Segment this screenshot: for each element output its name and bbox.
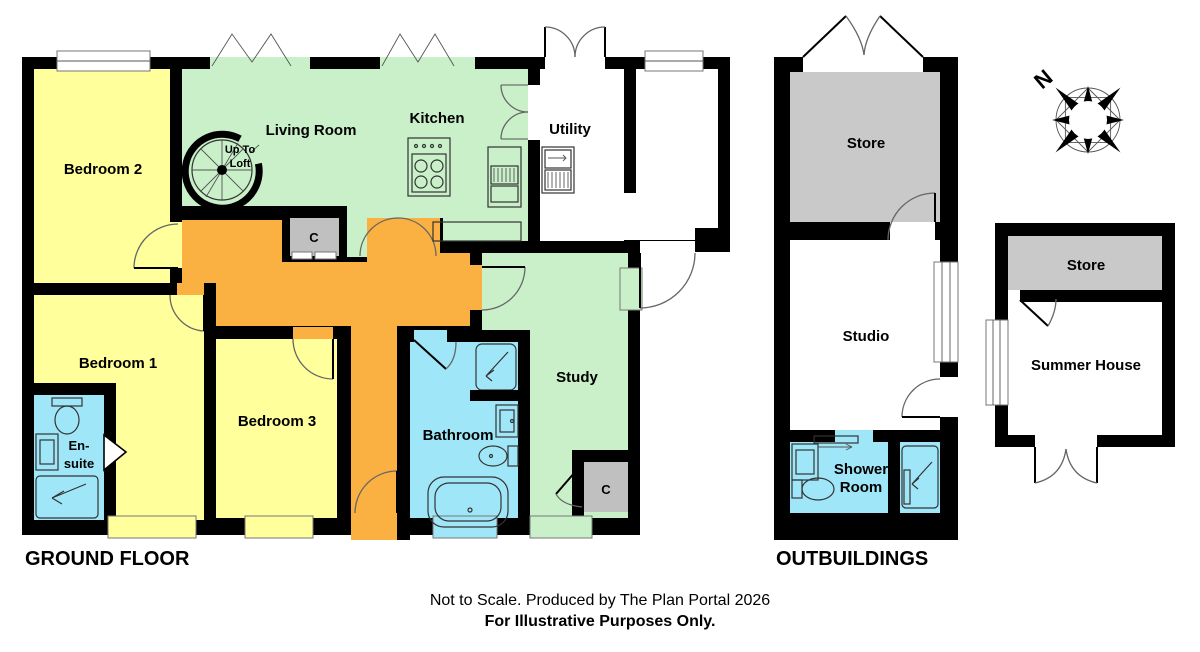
store-double-door: [803, 16, 923, 57]
window-bedroom3-bottom: [245, 516, 313, 538]
bathroom-study-wall: [518, 330, 530, 518]
summer-store-door-gap: [1008, 290, 1020, 302]
kitchen-utility-door-gap: [528, 85, 540, 140]
bathroom-label: Bathroom: [423, 427, 494, 444]
window-study-bottom: [530, 516, 592, 538]
bedroom3-top-wall-b: [333, 327, 351, 339]
utility-internal-wall: [624, 69, 636, 193]
store-door-gap: [890, 222, 935, 240]
wing-back-door: [640, 253, 695, 308]
summer-house-plan: Store Summer House: [986, 223, 1175, 483]
ground-floor-plan: C C: [22, 27, 730, 540]
bedroom1-right-wall: [204, 283, 216, 520]
bedroom3-door-gap: [293, 327, 333, 339]
room-utility-right: [636, 69, 718, 240]
closet-study-label: C: [601, 482, 611, 497]
studio-door-gap: [940, 377, 958, 417]
wing-door-gap: [640, 241, 695, 253]
studio-label: Studio: [843, 328, 890, 345]
ground-floor-title: GROUND FLOOR: [25, 548, 190, 570]
utility-opening: [624, 193, 636, 240]
bathroom-door-gap: [414, 330, 447, 342]
outbuildings-title: OUTBUILDINGS: [776, 548, 928, 570]
opening-living-top: [210, 57, 310, 70]
wing-corner: [695, 228, 730, 252]
ensuite-label-2: suite: [64, 456, 94, 471]
corridor-right-wall: [397, 326, 410, 540]
summer-entrance-gap: [1035, 435, 1097, 447]
shower-stall-area: [900, 442, 940, 513]
ensuite-label-1: En-: [69, 438, 90, 453]
summer-store-label: Store: [1067, 257, 1105, 274]
closet-hall: C: [282, 218, 347, 262]
closet-hall-label: C: [309, 230, 319, 245]
shower-room-label-1: Shower: [834, 461, 888, 478]
stairs-label-2: Loft: [230, 158, 251, 170]
window-studio-right: [934, 262, 958, 362]
window-summer-left: [986, 320, 1008, 405]
bedroom2-door-gap: [170, 222, 182, 268]
bedroom3-top-wall-a: [204, 327, 293, 339]
footer-line-1: Not to Scale. Produced by The Plan Porta…: [430, 592, 770, 609]
window-bedroom1-bottom: [108, 516, 196, 538]
compass-north-label: N: [1029, 64, 1057, 93]
kitchen-label: Kitchen: [409, 110, 464, 127]
stairs-label-1: Up To: [225, 144, 256, 156]
kitchen-bottom-wall: [440, 241, 640, 253]
study-door-gap: [470, 265, 482, 310]
summer-double-door: [1035, 447, 1097, 483]
entrance-opening: [545, 57, 605, 70]
bedroom2-label: Bedroom 2: [64, 161, 142, 178]
bed1-bed2-wall: [22, 283, 177, 295]
entrance-double-door: [545, 27, 605, 57]
opening-kitchen-top: [380, 57, 475, 70]
footer-line-2: For Illustrative Purposes Only.: [485, 613, 716, 630]
bedroom1-label: Bedroom 1: [79, 355, 157, 372]
window-study-right: [620, 268, 642, 310]
bedroom3-right-wall: [337, 339, 351, 518]
store-label: Store: [847, 135, 885, 152]
bedroom3-label: Bedroom 3: [238, 413, 316, 430]
utility-label: Utility: [549, 121, 591, 138]
compass-icon: N: [1029, 64, 1124, 154]
floor-plan-page: C C: [0, 0, 1200, 652]
summer-house-label: Summer House: [1031, 357, 1141, 374]
shower-room-label-2: Room: [840, 479, 883, 496]
living-room-label: Living Room: [266, 122, 357, 139]
store-entrance-gap: [803, 57, 923, 72]
room-utility: [540, 69, 624, 241]
study-label: Study: [556, 369, 598, 386]
floor-plan-canvas: C C: [0, 0, 1200, 652]
